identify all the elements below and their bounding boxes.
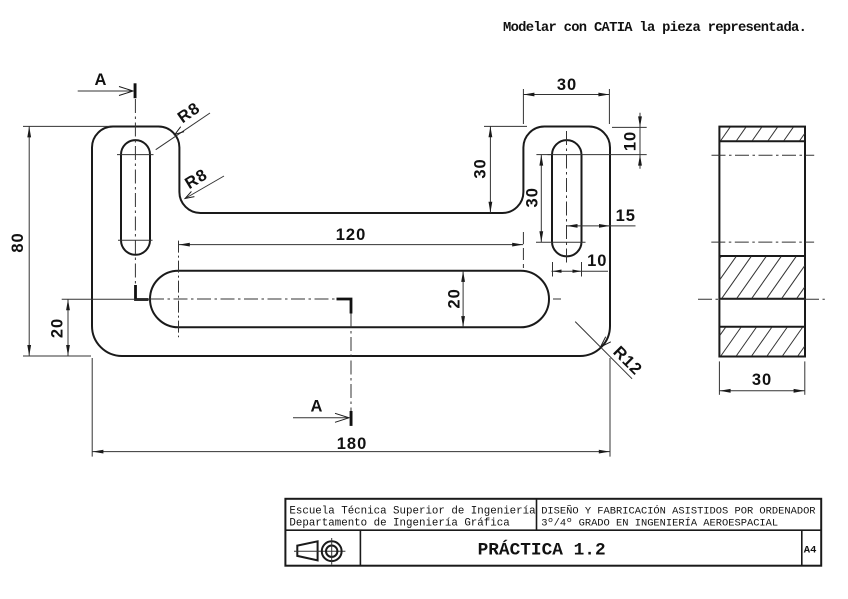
svg-text:30: 30 bbox=[557, 76, 577, 94]
svg-text:DISEÑO Y FABRICACIÓN ASISTIDOS: DISEÑO Y FABRICACIÓN ASISTIDOS POR ORDEN… bbox=[541, 504, 815, 518]
svg-text:A4: A4 bbox=[804, 544, 817, 556]
svg-text:3º/4º GRADO EN INGENIERÍA AERO: 3º/4º GRADO EN INGENIERÍA AEROESPACIAL bbox=[541, 516, 778, 530]
svg-text:Escuela Técnica Superior de In: Escuela Técnica Superior de Ingeniería bbox=[289, 506, 536, 518]
svg-text:15: 15 bbox=[616, 207, 636, 225]
svg-text:30: 30 bbox=[524, 187, 542, 207]
svg-text:Modelar con CATIA la pieza rep: Modelar con CATIA la pieza representada. bbox=[503, 20, 806, 36]
svg-text:180: 180 bbox=[337, 435, 368, 453]
svg-text:20: 20 bbox=[49, 318, 67, 338]
svg-text:Departamento de Ingeniería Grá: Departamento de Ingeniería Gráfica bbox=[289, 518, 510, 530]
svg-text:A: A bbox=[95, 71, 108, 89]
svg-text:30: 30 bbox=[752, 371, 772, 389]
svg-text:PRÁCTICA 1.2: PRÁCTICA 1.2 bbox=[478, 539, 606, 561]
svg-text:80: 80 bbox=[9, 232, 27, 252]
svg-text:10: 10 bbox=[587, 252, 607, 270]
svg-text:A: A bbox=[310, 398, 323, 416]
svg-text:30: 30 bbox=[472, 158, 490, 178]
svg-text:120: 120 bbox=[336, 226, 367, 244]
svg-text:10: 10 bbox=[622, 131, 640, 151]
svg-text:20: 20 bbox=[446, 288, 464, 308]
